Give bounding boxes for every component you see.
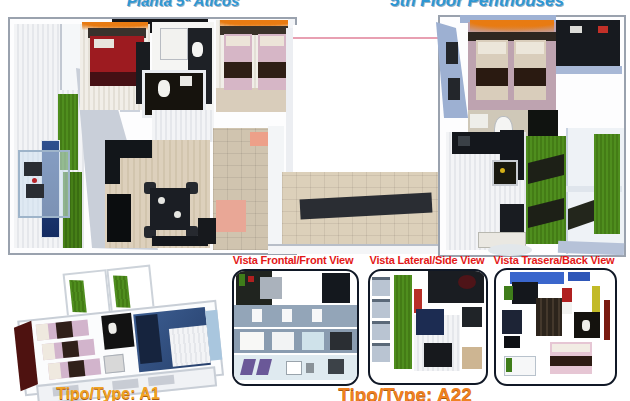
pillow	[94, 39, 114, 48]
pillow	[42, 343, 56, 360]
dark-furniture	[424, 343, 452, 367]
closet	[556, 20, 620, 66]
window	[448, 78, 460, 100]
bed-runner	[514, 68, 546, 86]
grass-wall	[526, 136, 566, 244]
view-label-back: Vista Trasera/Back View	[490, 254, 618, 266]
toilet	[582, 320, 590, 331]
dark-furniture	[198, 218, 216, 244]
floor	[169, 325, 211, 367]
type-label-a1: Tipo/Type: A1	[28, 385, 188, 401]
round-rug	[458, 275, 476, 289]
vanity	[160, 28, 188, 60]
grass-wall	[394, 275, 412, 369]
table	[286, 361, 302, 375]
opening	[302, 332, 324, 350]
courtyard-void	[293, 25, 451, 173]
pillow	[48, 363, 62, 380]
window-slit	[252, 309, 262, 322]
bottom-wall	[268, 244, 464, 254]
sink	[180, 76, 192, 86]
cooktop	[458, 136, 470, 146]
bed-runner	[550, 356, 592, 366]
dark-furniture	[462, 307, 482, 327]
pink-rail-line	[293, 37, 449, 39]
tv	[504, 336, 520, 348]
sofa	[502, 310, 522, 334]
wood-floor	[462, 347, 482, 369]
art-detail	[500, 168, 505, 173]
isometric-plan-a1	[5, 267, 217, 393]
pink-mat	[216, 200, 246, 232]
red-wall-edge	[604, 300, 610, 340]
bathroom	[101, 313, 134, 350]
white-accent	[562, 302, 572, 314]
view-label-front: Vista Frontal/Front View	[220, 254, 366, 266]
wall	[556, 66, 622, 74]
kitchen-counter	[105, 140, 152, 158]
plate	[174, 211, 181, 218]
window	[446, 42, 458, 64]
sink	[470, 114, 488, 128]
appliance	[260, 277, 282, 299]
view-label-side: Vista Lateral/Side View	[366, 254, 488, 266]
red-accent	[562, 288, 572, 302]
navy-island	[416, 309, 444, 335]
bed-runner	[62, 341, 80, 359]
ac-unit	[372, 321, 390, 340]
wall	[558, 241, 624, 255]
type-label-a22: Tipo/Type: A22	[305, 384, 505, 401]
bed-runner	[68, 360, 86, 378]
balcony-furniture	[24, 162, 42, 176]
shelf-item	[248, 276, 254, 282]
hallway-floor	[152, 110, 214, 142]
opening	[240, 332, 264, 350]
toilet	[192, 42, 203, 57]
chair	[306, 363, 314, 373]
balcony-item	[32, 178, 37, 183]
window-slit	[282, 309, 292, 322]
slanted-wall	[436, 22, 468, 118]
ac-unit	[372, 343, 390, 362]
pillow	[478, 42, 506, 54]
dining-table	[150, 188, 190, 230]
wall-art	[492, 160, 518, 186]
bed-runner	[56, 321, 74, 339]
wardrobe	[536, 298, 562, 336]
listing-render: Planta 5ª Aticos 5th Floor Penthouses	[0, 0, 630, 401]
dark-unit	[512, 282, 538, 304]
pillow	[36, 324, 50, 341]
balcony-furniture	[26, 184, 44, 198]
kitchen-counter	[105, 158, 120, 184]
blue-panel	[568, 272, 590, 281]
thumb-front-view	[232, 269, 359, 386]
tv-unit	[107, 194, 131, 242]
opening-dark	[330, 332, 352, 350]
grass-wall	[594, 134, 620, 234]
green-item	[504, 286, 513, 300]
floorplan-right-unit	[438, 15, 626, 257]
yellow-strip	[592, 286, 600, 312]
thumb-side-view	[368, 269, 488, 385]
table	[103, 354, 125, 374]
pillow	[516, 42, 544, 54]
pillow	[552, 344, 590, 352]
chair	[328, 359, 344, 374]
bed-runner	[476, 68, 508, 86]
dark-room	[428, 271, 484, 303]
window-slit	[312, 309, 322, 322]
toilet	[108, 322, 117, 334]
ac-unit	[372, 299, 390, 318]
thumb-back-view	[494, 268, 617, 386]
tv-wall	[322, 273, 350, 303]
iso-body	[6, 267, 217, 399]
closet-item	[570, 26, 582, 33]
green-strip	[506, 358, 512, 372]
opening	[272, 332, 294, 350]
toilet	[158, 80, 170, 97]
closet-item	[598, 26, 608, 33]
shelf-item	[239, 274, 245, 286]
plate	[158, 197, 165, 204]
ac-unit	[372, 277, 390, 296]
floorplan-courtyard	[213, 22, 463, 252]
